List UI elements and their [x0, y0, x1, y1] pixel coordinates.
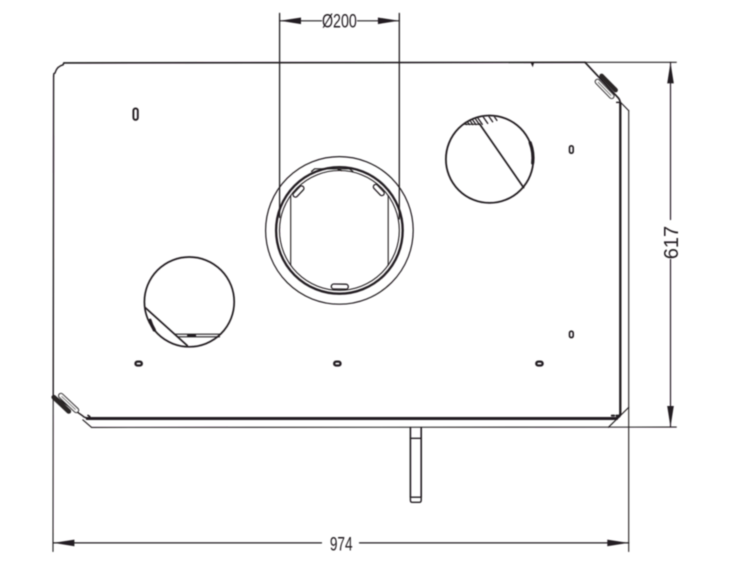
svg-text:Ø200: Ø200	[322, 11, 357, 33]
svg-text:974: 974	[330, 533, 353, 555]
svg-text:617: 617	[661, 226, 683, 259]
